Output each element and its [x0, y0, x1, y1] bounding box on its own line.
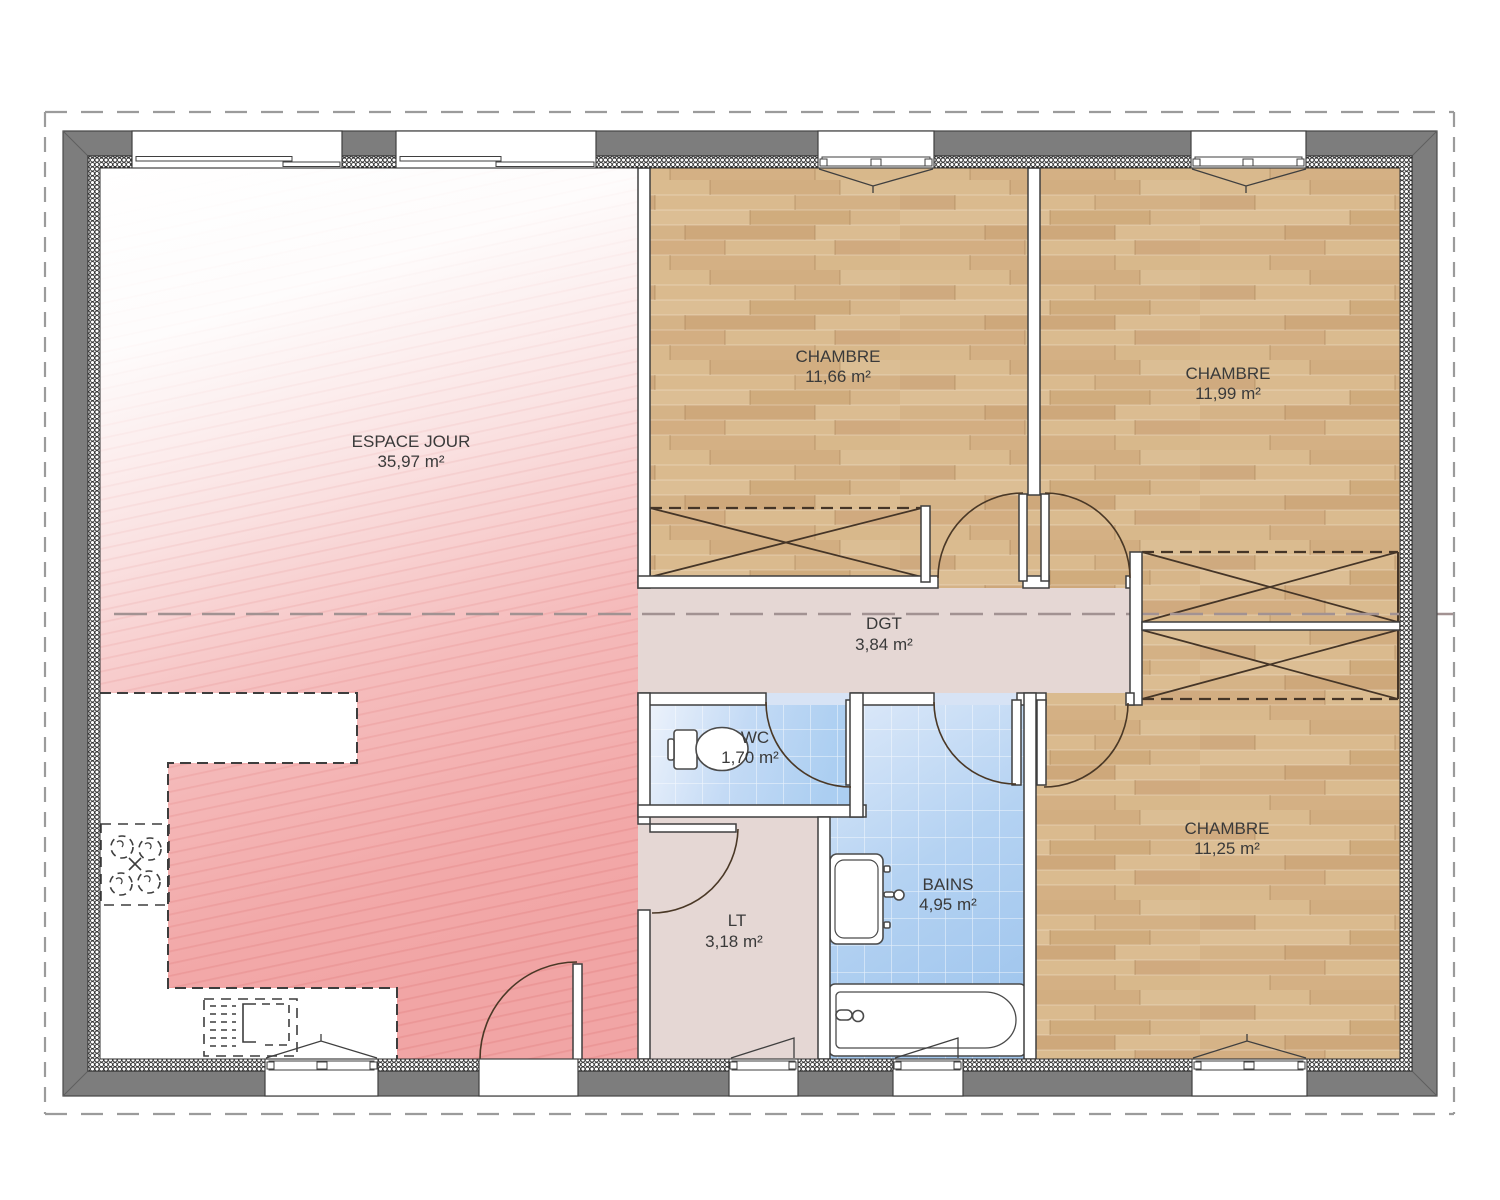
svg-text:3,84 m²: 3,84 m² [855, 635, 913, 654]
svg-text:11,66 m²: 11,66 m² [805, 367, 871, 386]
svg-text:ESPACE JOUR: ESPACE JOUR [352, 432, 471, 451]
svg-text:4,95 m²: 4,95 m² [919, 895, 977, 914]
svg-text:WC: WC [741, 728, 769, 747]
svg-text:35,97 m²: 35,97 m² [377, 452, 444, 471]
svg-text:11,25 m²: 11,25 m² [1194, 839, 1260, 858]
svg-text:BAINS: BAINS [922, 875, 973, 894]
svg-text:11,99 m²: 11,99 m² [1195, 384, 1261, 403]
svg-text:3,18 m²: 3,18 m² [705, 932, 763, 951]
svg-text:CHAMBRE: CHAMBRE [1184, 819, 1269, 838]
svg-text:CHAMBRE: CHAMBRE [795, 347, 880, 366]
svg-text:DGT: DGT [866, 614, 902, 633]
svg-text:CHAMBRE: CHAMBRE [1185, 364, 1270, 383]
svg-text:LT: LT [728, 911, 747, 930]
svg-text:1,70 m²: 1,70 m² [721, 748, 779, 767]
